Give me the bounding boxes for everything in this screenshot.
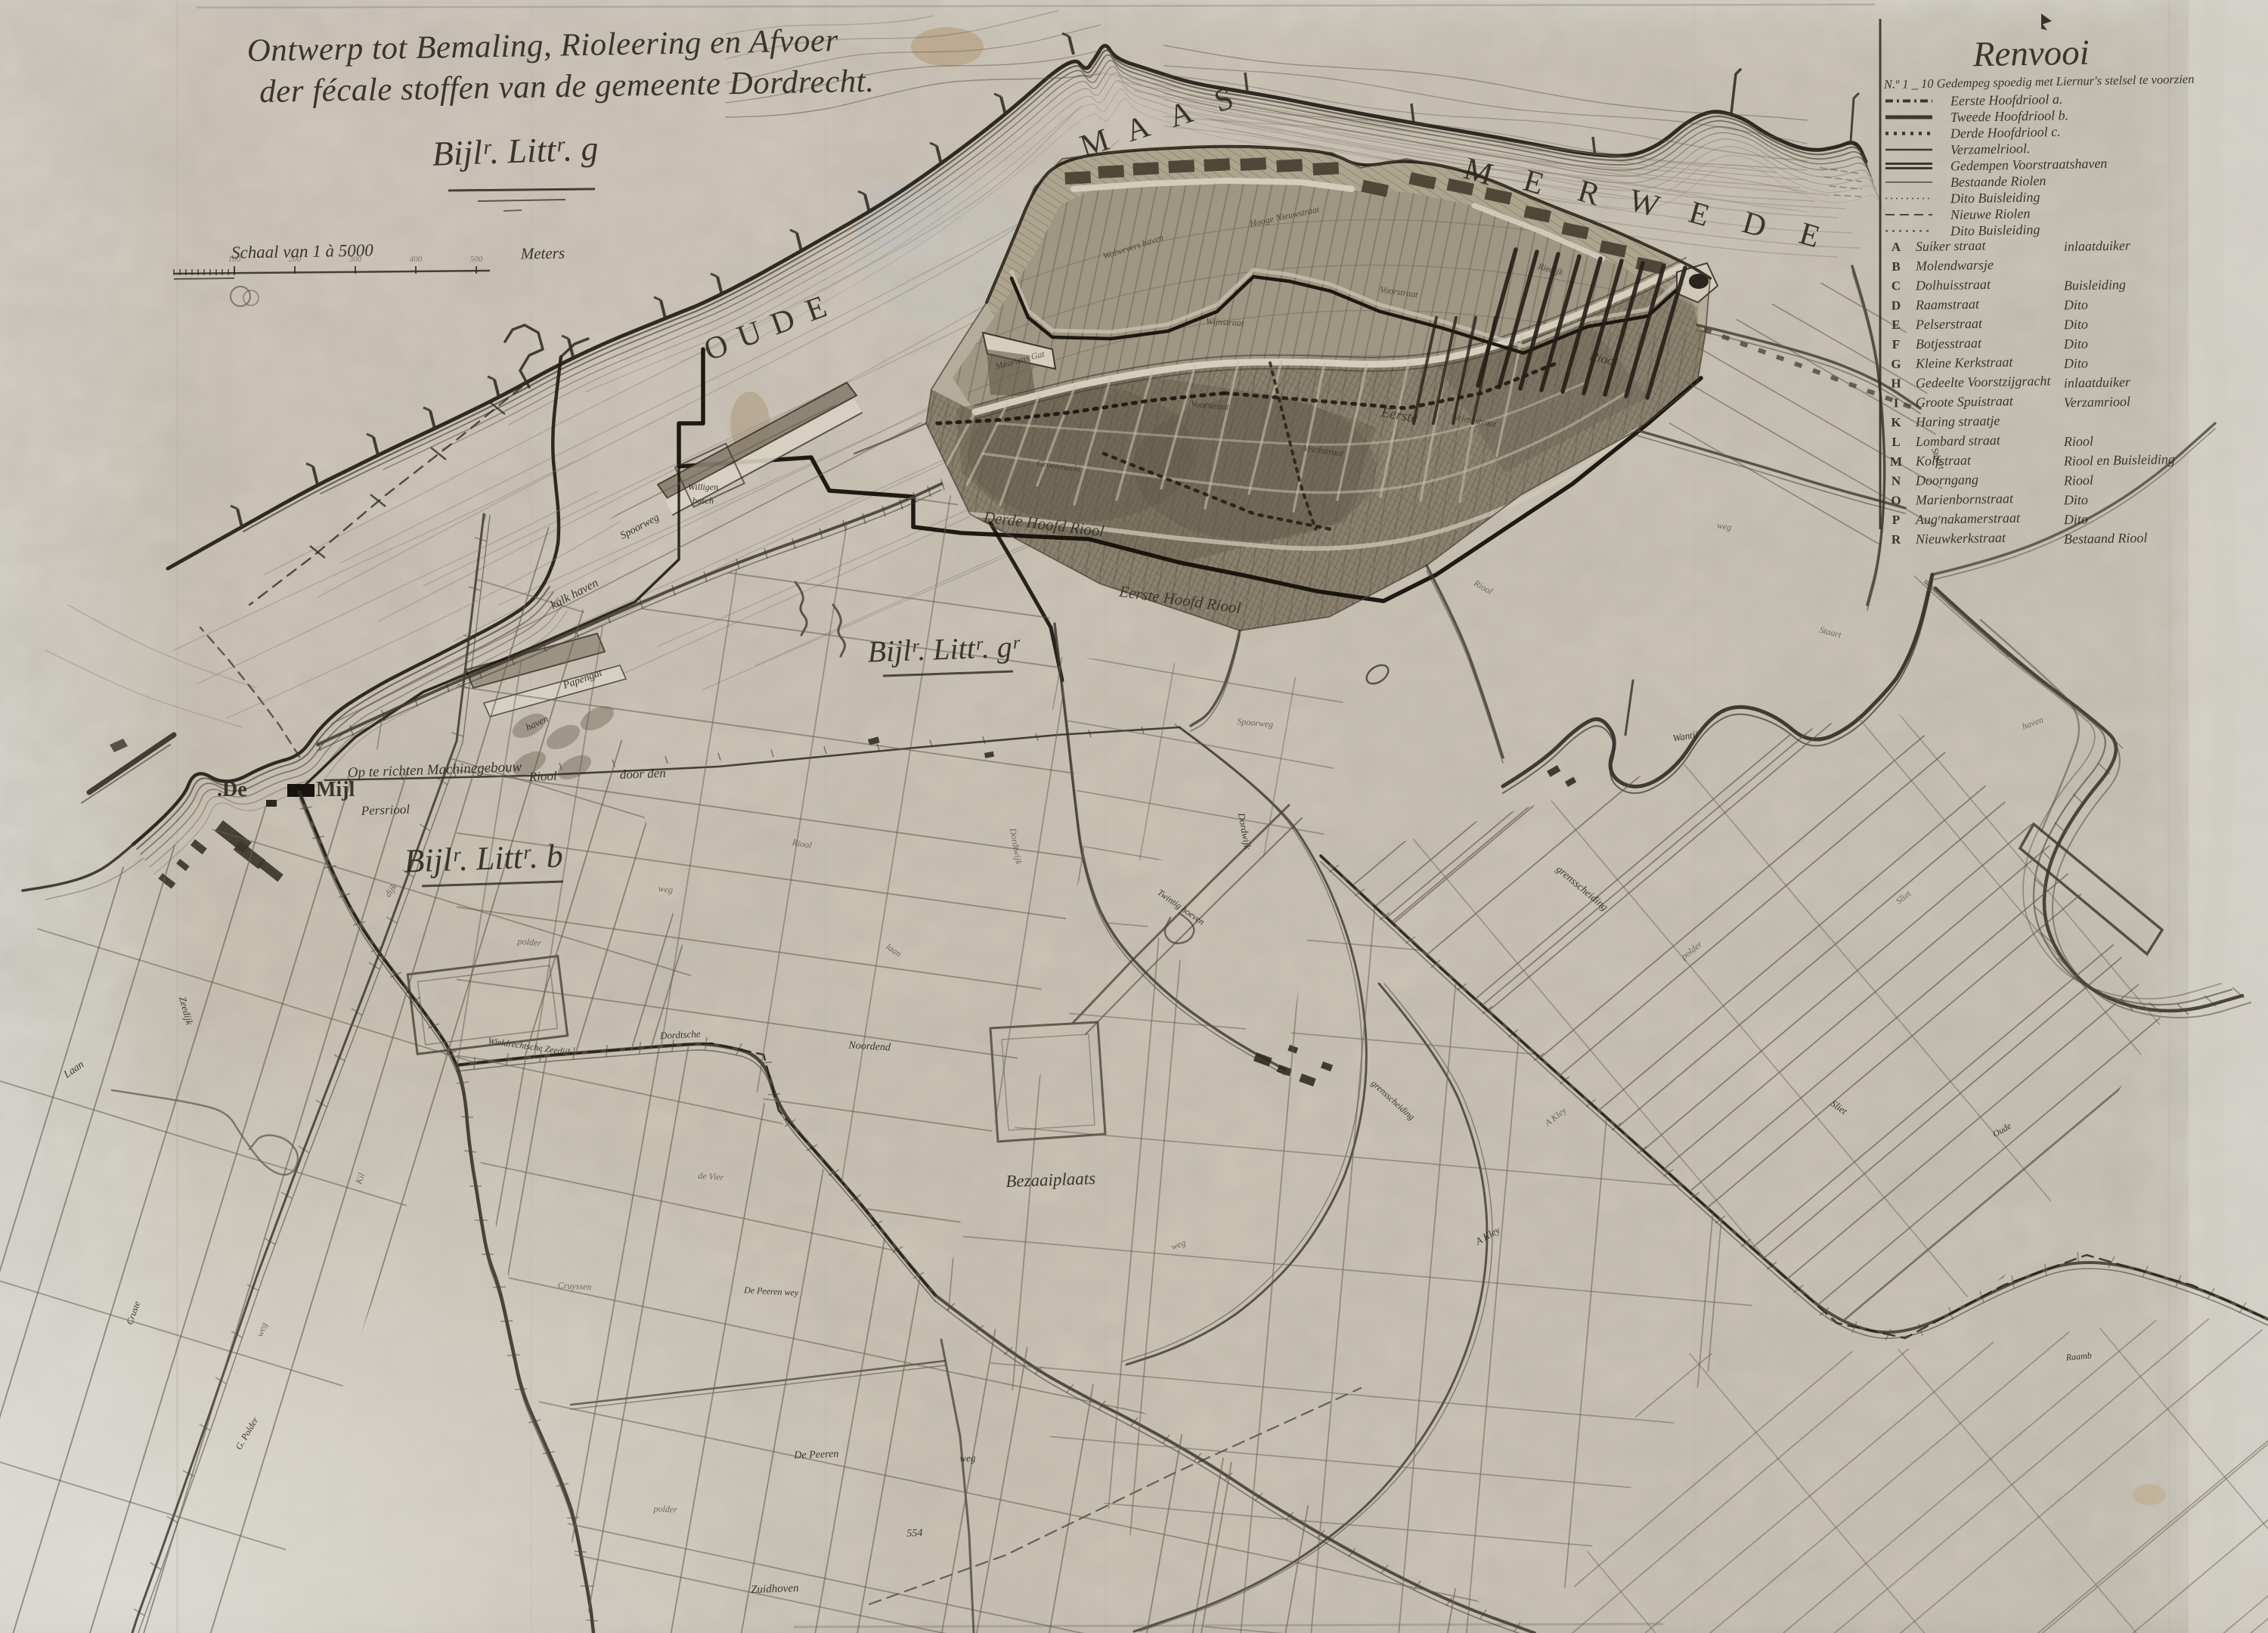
svg-text:I: I bbox=[1894, 395, 1899, 410]
svg-text:bosch: bosch bbox=[692, 495, 714, 506]
svg-text:Dito: Dito bbox=[2063, 512, 2088, 528]
svg-text:Verzamriool: Verzamriool bbox=[2064, 394, 2130, 411]
svg-text:Buisleiding: Buisleiding bbox=[2064, 277, 2126, 293]
svg-text:Raamstraat: Raamstraat bbox=[1915, 296, 1980, 312]
svg-text:Derde Hoofdriool c.: Derde Hoofdriool c. bbox=[1950, 124, 2061, 141]
svg-text:P: P bbox=[1892, 513, 1900, 527]
svg-text:A: A bbox=[1892, 240, 1901, 254]
svg-text:Bezaaiplaats: Bezaaiplaats bbox=[1005, 1169, 1096, 1191]
svg-text:door den: door den bbox=[619, 766, 666, 782]
svg-text:Bestaande Riolen: Bestaande Riolen bbox=[1950, 173, 2046, 190]
svg-text:G: G bbox=[1891, 357, 1901, 371]
svg-text:Verzamelriool.: Verzamelriool. bbox=[1950, 141, 2031, 157]
svg-text:B: B bbox=[1892, 259, 1900, 274]
svg-text:L: L bbox=[1892, 435, 1900, 449]
svg-text:500: 500 bbox=[470, 255, 483, 264]
svg-text:Zuidhoven: Zuidhoven bbox=[751, 1582, 799, 1596]
svg-text:Bijlʳ. Littʳ. gʳ: Bijlʳ. Littʳ. gʳ bbox=[867, 629, 1021, 668]
svg-text:Nieuwe Riolen: Nieuwe Riolen bbox=[1950, 206, 2031, 222]
svg-text:Dito: Dito bbox=[2063, 492, 2088, 508]
svg-text:Riool: Riool bbox=[2063, 473, 2093, 488]
svg-text:H: H bbox=[1891, 376, 1901, 391]
svg-text:Tweede Hoofdriool b.: Tweede Hoofdriool b. bbox=[1950, 107, 2068, 125]
svg-text:D: D bbox=[1892, 298, 1901, 312]
svg-text:Willigen: Willigen bbox=[688, 482, 718, 492]
svg-text:inlaatduiker: inlaatduiker bbox=[2064, 237, 2131, 254]
svg-text:Dolhuisstraat: Dolhuisstraat bbox=[1915, 277, 1991, 293]
svg-text:Haring straatje: Haring straatje bbox=[1915, 413, 2000, 429]
svg-text:Marienbornstraat: Marienbornstraat bbox=[1915, 491, 2014, 507]
svg-text:Riool: Riool bbox=[528, 769, 557, 784]
svg-text:C: C bbox=[1892, 279, 1901, 293]
svg-text:200: 200 bbox=[289, 255, 302, 264]
svg-text:Suiker straat: Suiker straat bbox=[1916, 237, 1987, 254]
svg-text:M: M bbox=[1890, 454, 1902, 469]
svg-text:Wijnstraat: Wijnstraat bbox=[1206, 316, 1244, 329]
svg-text:F: F bbox=[1892, 337, 1900, 352]
svg-text:300: 300 bbox=[349, 255, 362, 264]
svg-text:O: O bbox=[1891, 493, 1901, 507]
svg-text:Augʳnakamerstraat: Augʳnakamerstraat bbox=[1915, 510, 2021, 527]
svg-text:Persriool: Persriool bbox=[360, 802, 410, 818]
svg-text:Dito: Dito bbox=[2063, 355, 2088, 371]
svg-text:Gedempen Voorstraatshaven: Gedempen Voorstraatshaven bbox=[1950, 156, 2108, 174]
svg-text:Botjesstraat: Botjesstraat bbox=[1916, 335, 1982, 352]
svg-text:Mijl: Mijl bbox=[316, 778, 355, 801]
svg-text:R: R bbox=[1892, 532, 1901, 547]
svg-text:inlaatduiker: inlaatduiker bbox=[2064, 374, 2131, 391]
svg-text:Dito: Dito bbox=[2063, 317, 2088, 333]
svg-text:Dito: Dito bbox=[2063, 297, 2088, 313]
svg-text:Riool: Riool bbox=[2063, 433, 2093, 449]
svg-text:Dordtsche: Dordtsche bbox=[659, 1028, 702, 1042]
svg-text:Doorngang: Doorngang bbox=[1915, 472, 1978, 488]
svg-text:Kleine Kerkstraat: Kleine Kerkstraat bbox=[1915, 355, 2014, 371]
svg-text:K: K bbox=[1891, 415, 1901, 429]
svg-text:Lombard straat: Lombard straat bbox=[1915, 432, 2001, 449]
svg-text:Eerste Hoofdriool a.: Eerste Hoofdriool a. bbox=[1950, 91, 2063, 109]
svg-text:Riool en Buisleiding: Riool en Buisleiding bbox=[2063, 451, 2175, 469]
svg-text:Cruyssen: Cruyssen bbox=[558, 1280, 592, 1292]
svg-text:Dito Buisleiding: Dito Buisleiding bbox=[1950, 189, 2040, 206]
svg-text:Renvooi: Renvooi bbox=[1972, 33, 2090, 75]
svg-text:Gedeelte Voorstzijgracht: Gedeelte Voorstzijgracht bbox=[1916, 373, 2052, 390]
svg-text:Bestaand Riool: Bestaand Riool bbox=[2064, 530, 2148, 547]
svg-text:Dito Buisleiding: Dito Buisleiding bbox=[1950, 222, 2040, 238]
svg-text:554: 554 bbox=[906, 1528, 923, 1540]
svg-text:Meters: Meters bbox=[520, 243, 565, 262]
svg-text:Dito: Dito bbox=[2063, 336, 2088, 352]
svg-text:de Vier: de Vier bbox=[698, 1170, 724, 1182]
svg-text:Noordend: Noordend bbox=[847, 1040, 891, 1054]
svg-text:weg: weg bbox=[658, 883, 674, 896]
svg-text:400: 400 bbox=[410, 255, 423, 264]
svg-text:polder: polder bbox=[652, 1503, 677, 1514]
svg-text:.De: .De bbox=[217, 778, 247, 801]
svg-text:Groote Spuistraat: Groote Spuistraat bbox=[1916, 393, 2014, 410]
svg-text:De Peeren: De Peeren bbox=[793, 1449, 838, 1461]
svg-text:Bijlʳ. Littʳ. b: Bijlʳ. Littʳ. b bbox=[404, 837, 564, 879]
svg-text:weg: weg bbox=[959, 1452, 976, 1464]
svg-text:Nieuwkerkstraat: Nieuwkerkstraat bbox=[1915, 530, 2006, 547]
svg-text:Molendwarsje: Molendwarsje bbox=[1915, 257, 1994, 274]
svg-text:Bijlʳ. Littʳ. g: Bijlʳ. Littʳ. g bbox=[432, 129, 599, 173]
svg-text:polder: polder bbox=[516, 936, 542, 949]
svg-text:N: N bbox=[1892, 474, 1901, 488]
svg-text:Pelserstraat: Pelserstraat bbox=[1915, 316, 1983, 333]
svg-text:100: 100 bbox=[228, 255, 241, 264]
svg-text:E: E bbox=[1892, 318, 1900, 332]
